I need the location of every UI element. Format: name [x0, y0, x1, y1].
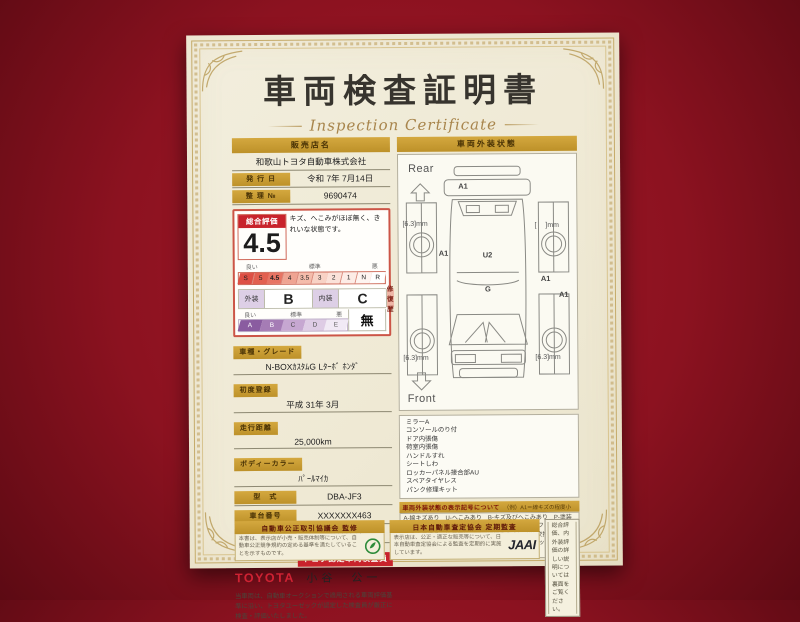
field-model-grade: 車種・グレード N-BOXｶｽﾀﾑG Lﾀｰﾎﾞ ﾎﾝﾀﾞ	[233, 340, 391, 375]
tire-depth-front-right: [6.3]mm	[535, 354, 560, 361]
interior-grade-value: C	[339, 289, 387, 307]
field-first-registration: 初度登録 平成 31年 3月	[234, 378, 392, 413]
fair-trade-note: 本書は、表示店が小売・販売体制等について、自動車公正競争規約の定める基準を満たし…	[239, 535, 362, 558]
damage-mark-rear-bumper: A1	[458, 182, 468, 191]
field-value: DBA-JF3	[296, 491, 392, 502]
fair-trade-council-block: 自動車公正取引協議会 監修 本書は、表示店が小売・販売体制等について、自動車公正…	[235, 520, 386, 619]
front-direction-label: Front	[408, 393, 436, 405]
field-value: ﾊﾟｰﾙﾏｲｶ	[234, 470, 392, 487]
rear-direction-label: Rear	[408, 163, 434, 175]
interior-grade-label: 内装	[313, 290, 339, 308]
page-title: 車両検査証明書	[186, 62, 619, 113]
field-value: 25,000km	[234, 434, 392, 449]
issue-date-label: 発 行 日	[232, 172, 290, 185]
condition-notes-list: ミラーA コンソールのり付 ドア内張傷 荷室内張傷 ハンドルすれ シートしわ ロ…	[399, 414, 580, 499]
field-value: 平成 31年 3月	[234, 396, 392, 413]
jaai-audit-bar: 日本自動車査定協会 定期監査	[390, 519, 540, 533]
field-label: 車種・グレード	[233, 345, 301, 358]
scale-label-bad: 悪	[336, 309, 342, 318]
condition-comment: キズ、へこみがほぼ無く、きれいな状態です。	[289, 213, 385, 260]
certificate-footer: 自動車公正取引協議会 監修 本書は、表示店が小売・販売体制等について、自動車公正…	[235, 519, 581, 620]
dealer-header: 販売店名	[232, 137, 390, 153]
scale-cell: A	[238, 320, 263, 331]
exterior-grade-value: B	[265, 290, 313, 308]
car-exterior-diagram: Rear Front A1 A1 U2 A1 A1 G [6.3]mm [ ]m…	[397, 153, 579, 411]
score-scale-strip: S 5 4.5 4 3.5 3 2 1 N R	[238, 271, 386, 285]
legend-header: 車両外装状態の表示記号について	[402, 502, 499, 512]
fair-trade-council-bar: 自動車公正取引協議会 監修	[235, 520, 385, 534]
exterior-condition-header: 車両外装状態	[397, 136, 577, 152]
score-scale-labels: 良い 標準 悪	[238, 259, 386, 271]
field-body-color: ボディーカラー ﾊﾟｰﾙﾏｲｶ	[234, 452, 392, 487]
reference-number-row: 整 理 № 9690474	[232, 187, 390, 205]
scale-label-good: 良い	[246, 262, 258, 271]
damage-mark-left-quarter: A1	[439, 249, 449, 258]
jaai-audit-block: 日本自動車査定協会 定期監査 表示店は、公正・適正な販売等について、日本自動車査…	[390, 519, 541, 618]
scale-label-bad: 悪	[372, 261, 378, 270]
tire-depth-rear-left: [6.3]mm	[402, 221, 427, 228]
repair-history-label: 修復歴	[387, 289, 394, 307]
green-seal-icon	[365, 538, 381, 554]
tire-depth-front-left: [6.3]mm	[403, 355, 428, 362]
field-value: N-BOXｶｽﾀﾑG Lﾀｰﾎﾞ ﾎﾝﾀﾞ	[233, 358, 391, 375]
see-reverse-note: 総合評価、内外装評価の詳しい説明については裏面をご覧ください。	[552, 522, 574, 614]
reference-number-value: 9690474	[290, 190, 390, 201]
flourish-line	[268, 125, 302, 126]
jaai-logo: JAAI	[508, 538, 536, 553]
dealer-name: 和歌山トヨタ自動車株式会社	[232, 152, 390, 171]
scale-cell: E	[324, 319, 349, 330]
overall-score-value: 4.5	[238, 228, 285, 259]
flourish-line	[505, 124, 539, 125]
grade-row: 外装 B 内装 C 修復歴	[238, 288, 386, 309]
jaai-audit-note: 表示店は、公正・適正な販売等について、日本自動車査定協会による監査を定期的に実施…	[394, 534, 506, 557]
car-outline-drawing	[398, 154, 578, 410]
overall-score-cell: 総合評価 4.5	[237, 214, 286, 260]
field-label: 型 式	[234, 490, 296, 503]
damage-mark-right-front: A1	[559, 290, 569, 299]
field-label: 初度登録	[234, 383, 278, 396]
damage-mark-right-rear: A1	[541, 274, 551, 283]
issue-date-row: 発 行 日 令和 7年 7月14日	[232, 170, 390, 188]
legend-example: （例）A1＝線キズの程度小	[504, 502, 571, 510]
scale-label-standard: 標準	[309, 262, 321, 271]
subtitle-text: Inspection Certificate	[310, 115, 498, 134]
reference-number-label: 整 理 №	[232, 189, 290, 202]
field-mileage: 走行距離 25,000km	[234, 416, 392, 449]
overall-rating-box: 総合評価 4.5 キズ、へこみがほぼ無く、きれいな状態です。 良い 標準 悪 S…	[232, 208, 391, 337]
letter-scale-strip: A B C D E	[238, 318, 348, 332]
damage-mark-hood: G	[485, 284, 491, 293]
repair-history-value: 無	[348, 309, 386, 331]
note-item: パンク修理キット	[406, 485, 572, 495]
page-subtitle: Inspection Certificate	[187, 114, 620, 135]
see-reverse-note-box: 総合評価、内外装評価の詳しい説明については裏面をご覧ください。	[545, 519, 581, 618]
scale-cell: R	[370, 272, 386, 283]
issue-date-value: 令和 7年 7月14日	[290, 172, 390, 185]
scale-label-good: 良い	[244, 310, 256, 319]
scale-label-standard: 標準	[290, 310, 302, 319]
certificate-paper: 車両検査証明書 Inspection Certificate 販売店名 和歌山ト…	[186, 32, 623, 568]
tire-depth-rear-right: [ ]mm	[534, 220, 559, 230]
field-label: ボディーカラー	[234, 457, 302, 470]
exterior-grade-label: 外装	[239, 290, 265, 308]
overall-score-header: 総合評価	[238, 215, 285, 228]
damage-mark-roof: U2	[483, 250, 493, 259]
field-label: 走行距離	[234, 421, 278, 434]
field-model-code: 型 式 DBA-JF3	[234, 488, 392, 506]
